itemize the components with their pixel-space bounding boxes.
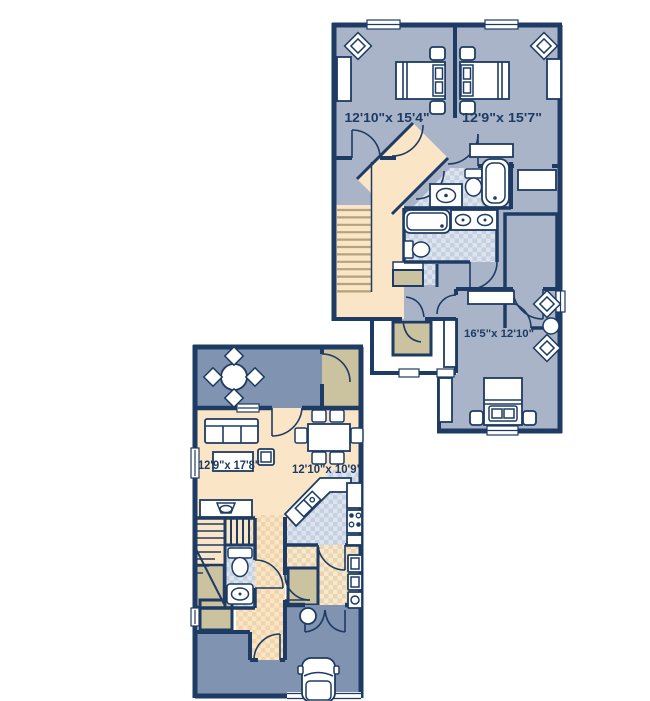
- bed-icon: [484, 378, 522, 425]
- dresser-icon: [470, 144, 513, 157]
- entry-door-leaf: [444, 320, 456, 367]
- living-room-dimensions: 12'9"x 17'8": [198, 460, 260, 472]
- dining-kitchen-dimensions: 12'10"x 10'9": [292, 464, 362, 476]
- dresser-icon: [337, 57, 351, 101]
- toilet-icon: [465, 169, 482, 196]
- dining-chair-icon: [295, 428, 307, 443]
- side-table-icon: [543, 318, 559, 334]
- floor-plan-canvas: 12'10"x 15'4" 12'9"x 15'7" 16'5"x 12'10": [0, 0, 650, 701]
- bathtub-icon: [404, 210, 450, 233]
- dining-chair-icon: [351, 428, 363, 443]
- counter-icon: [347, 535, 362, 545]
- utility-icon: [348, 574, 362, 590]
- bedroom-1-dimensions: 12'10"x 15'4": [345, 111, 430, 125]
- bar-sink-icon: [200, 500, 252, 517]
- dresser-icon: [439, 378, 452, 422]
- refrigerator-icon: [347, 483, 362, 508]
- nightstand-icon: [470, 411, 483, 425]
- toilet-icon: [404, 241, 430, 258]
- dining-chair-icon: [312, 452, 326, 464]
- dining-chair-icon: [330, 452, 344, 464]
- nightstand-icon: [430, 47, 445, 60]
- bed-icon: [460, 62, 509, 99]
- bedroom-3-dimensions: 16'5"x 12'10": [464, 328, 534, 340]
- dryer-icon: [348, 592, 362, 608]
- washer-icon: [348, 555, 362, 572]
- floor-plan-svg: 12'10"x 15'4" 12'9"x 15'7" 16'5"x 12'10": [0, 0, 650, 701]
- stove-icon: [347, 510, 362, 533]
- lower-floor-plan: 12'9"x 17'8" 12'10"x 10'9": [191, 345, 363, 701]
- column-icon: [300, 608, 316, 624]
- upper-floor-plan: 12'10"x 15'4" 12'9"x 15'7" 16'5"x 12'10": [332, 20, 565, 435]
- nightstand-icon: [430, 101, 445, 114]
- patio-table-icon: [221, 364, 247, 390]
- car-icon: [298, 658, 339, 701]
- laundry: [348, 555, 362, 608]
- dining-chair-icon: [312, 410, 326, 422]
- sofa-icon: [205, 419, 258, 443]
- dresser-icon: [468, 291, 514, 304]
- dining-chair-icon: [330, 410, 344, 422]
- dining-table-icon: [308, 424, 350, 451]
- nightstand-icon: [523, 411, 536, 425]
- bedroom-2-dimensions: 12'9"x 15'7": [462, 111, 542, 125]
- dresser-icon: [547, 59, 561, 99]
- double-vanity-icon: [451, 210, 497, 230]
- nightstand-icon: [460, 47, 475, 60]
- bathtub-icon: [482, 159, 509, 207]
- bed-icon: [396, 62, 445, 99]
- sink-icon: [227, 584, 253, 604]
- armchair-icon: [258, 449, 274, 465]
- lower-floor-base: [195, 347, 363, 698]
